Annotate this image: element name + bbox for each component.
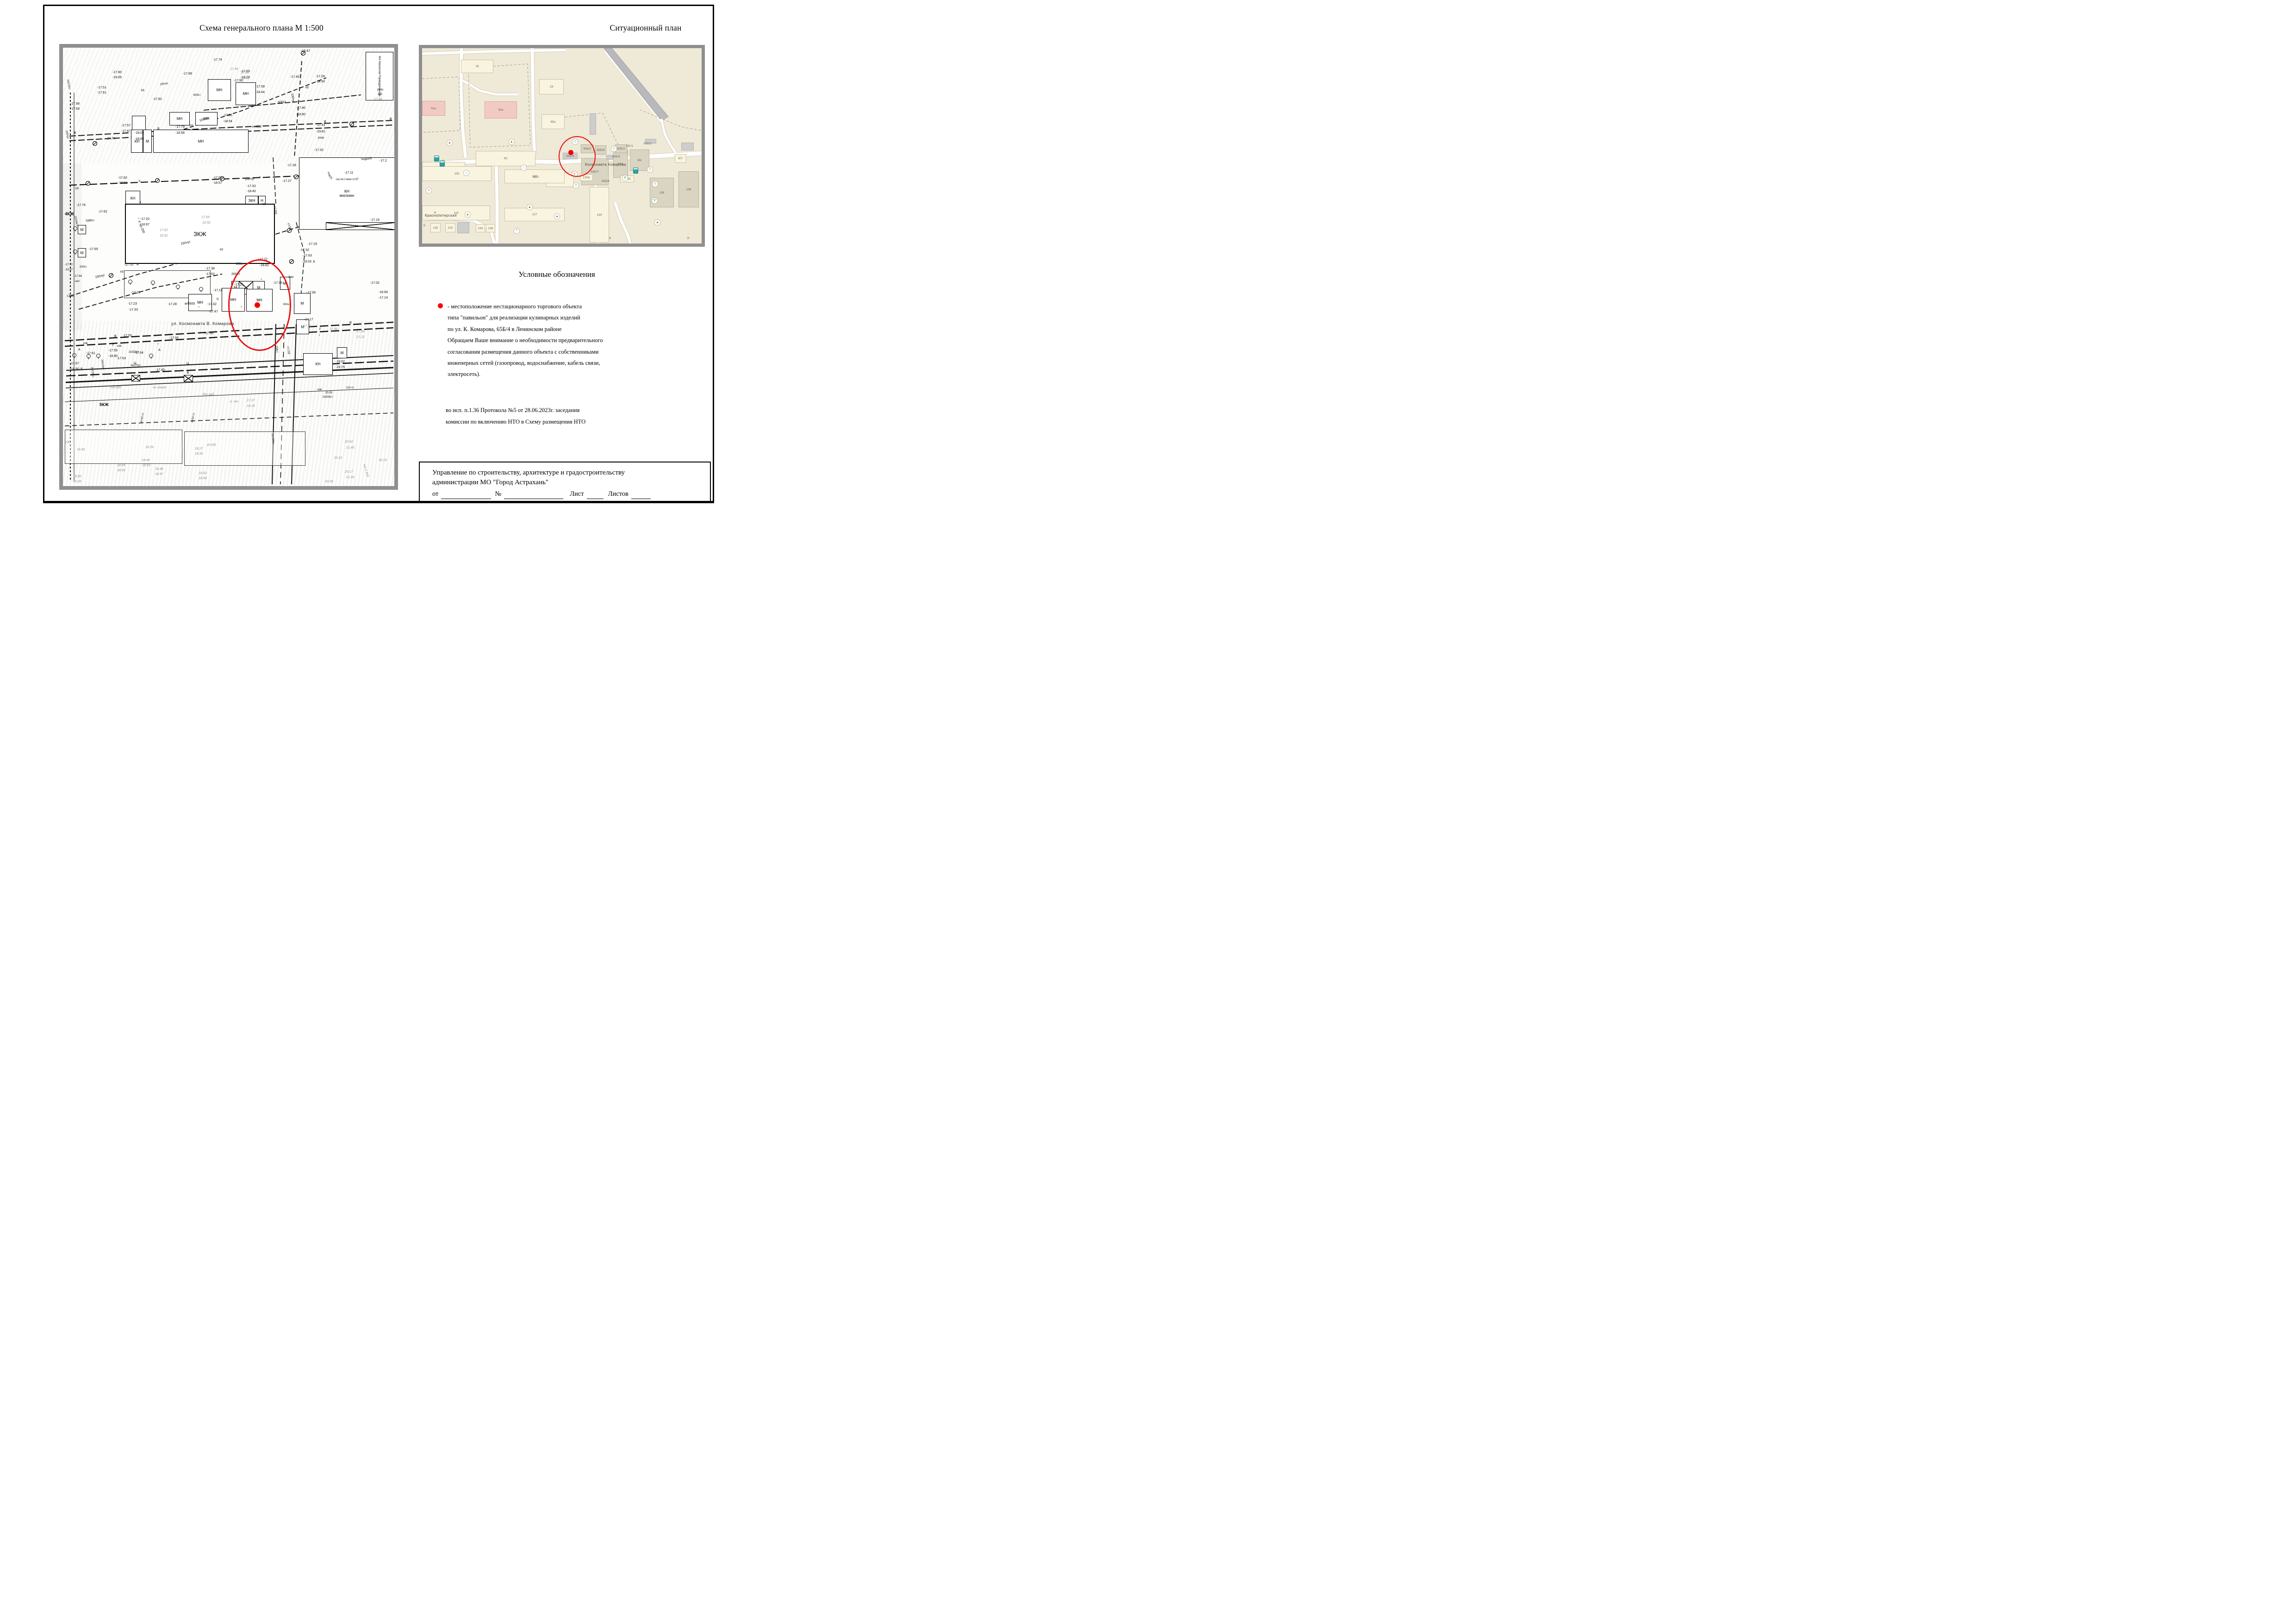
sheet-label: Лист <box>570 490 584 498</box>
pencil-label: 17.50 <box>330 328 338 331</box>
elevation-label: ков. <box>117 344 122 348</box>
elevation-label: 4КЖ <box>65 212 74 216</box>
plan-building: КН магазин <box>299 157 394 230</box>
bottle-icon: ! <box>652 181 658 187</box>
legend-text-line: Обращаем Ваше внимание о необходимости п… <box>448 335 701 346</box>
elevation-label: -17.67 <box>70 362 79 366</box>
elevation-label: -17.62 <box>98 210 107 214</box>
bottle-icon: ! <box>647 167 653 173</box>
plan-building: М <box>78 225 86 234</box>
elevation-label: 159ст <box>274 345 279 353</box>
map-building: 136 <box>486 224 495 232</box>
elevation-label: Кб <box>220 248 223 252</box>
elevation-label: -17.69 <box>70 107 80 111</box>
elevation-label: -17.32 <box>314 149 324 152</box>
elevation-label: -19.81 <box>316 130 325 134</box>
pencil-label: 18.27 <box>195 447 203 451</box>
playground-icon: ▲ <box>465 212 471 218</box>
elevation-label: В <box>114 335 117 338</box>
pencil-label: 18.85 <box>73 475 81 479</box>
parking-label: Р <box>609 237 611 240</box>
pencil-label: 18.48 <box>155 468 163 471</box>
tree-icon <box>73 226 77 231</box>
pencil-label: 18.66 <box>199 477 207 481</box>
elevation-label: -17.82 <box>118 176 127 180</box>
elevation-label: В <box>74 131 76 135</box>
map-building: 138 <box>678 171 699 207</box>
elevation-label: -18.90 <box>70 368 79 371</box>
elevation-label: -17.58 <box>70 102 80 106</box>
elevation-label: Зам <box>288 275 293 279</box>
bus-icon <box>434 156 439 162</box>
playground-icon: ▲ <box>527 204 533 210</box>
pencil-label: 18.44 <box>142 459 150 462</box>
elevation-label: 2d159ст <box>129 350 139 354</box>
elevation-label: -17.52 <box>213 176 222 180</box>
pencil-label: р. шк. <box>230 400 239 404</box>
plan-building: МН <box>208 79 231 101</box>
pencil-label: 17.62 <box>160 229 168 232</box>
tree-icon <box>151 281 155 285</box>
plan-building: ЗКЖ <box>125 204 275 264</box>
pencil-label: 20.42 <box>345 440 353 444</box>
playground-icon: ▲ <box>447 140 453 146</box>
blank-line <box>587 493 604 499</box>
elevation-label: Кб <box>120 270 124 274</box>
map-building: 16 <box>461 60 493 73</box>
elevation-label: 2d273ст <box>131 364 141 368</box>
protocol-line: комиссии по включению НТО в Схему размещ… <box>446 416 696 428</box>
map-building: 61а <box>422 101 445 116</box>
elevation-label: -19.02 <box>336 360 345 364</box>
elevation-label: ст.400 <box>252 125 261 129</box>
pencil-label: 17.48 <box>374 98 382 101</box>
elevation-label: -17.2 <box>380 159 387 163</box>
legend-item: - местоположение нестационарного торгово… <box>435 301 701 380</box>
elevation-label: -17.45 <box>156 369 165 372</box>
elevation-label: В <box>157 127 160 131</box>
elevation-label: -18.57 <box>213 181 222 185</box>
tree-icon <box>128 280 132 284</box>
map-building: 132 <box>445 223 455 232</box>
elevation-label: К <box>139 180 141 183</box>
pencil-label: 2d=265 <box>110 386 121 390</box>
bus-icon <box>440 161 445 167</box>
map-building: 65Б/6 <box>595 145 606 155</box>
elevation-label: ков <box>317 388 322 392</box>
nto-location-dot <box>255 302 260 308</box>
elevation-label: -17.89 <box>183 72 192 76</box>
elevation-label: -17.38 <box>205 267 215 271</box>
pencil-label: 18.53 <box>142 464 150 468</box>
legend-text-line: по ул. К. Комарова, 65Б/4 в Ленинском ра… <box>448 324 701 335</box>
elevation-label: Б <box>187 371 189 375</box>
elevation-label: -17.02 <box>370 281 380 285</box>
map-building: 67г <box>675 154 686 163</box>
pencil-label: по земле <box>153 386 166 390</box>
elevation-label: Б <box>81 368 83 371</box>
survey-cross-mark: × <box>318 334 320 337</box>
map-building-label: 65Б/8 <box>602 180 610 183</box>
playground-icon: ▲ <box>554 213 560 219</box>
elevation-label: -17.52 <box>247 185 256 188</box>
legend-text: - местоположение нестационарного торгово… <box>448 301 701 380</box>
elevation-label: -17.32 <box>207 303 217 306</box>
tree-icon <box>87 354 91 358</box>
pencil-label: 18.25 <box>247 405 255 408</box>
elevation-label: Кб <box>75 187 79 191</box>
pencil-label: 18.45 <box>117 464 125 468</box>
number-label: № <box>495 490 501 498</box>
elevation-label: -17.41 <box>316 124 325 127</box>
elevation-label: -17.11 <box>213 289 222 293</box>
sitplan-canvas: 161861а63а65а61636565Б/765/165г67г65а/26… <box>422 48 702 244</box>
nto-location-dot <box>568 150 573 155</box>
elevation-label: -17.59 <box>255 85 265 89</box>
elevation-label: В <box>349 321 352 325</box>
pencil-label: 17.45 <box>230 68 238 71</box>
elevation-label: -17.28 <box>168 303 177 306</box>
street-name-label: ул. Космонавта В. Комарова <box>171 322 234 326</box>
elevation-label: ков. <box>83 342 88 345</box>
elevation-label: К <box>259 176 261 180</box>
elevation-label: -17.47 <box>209 310 218 314</box>
pencil-label: 17.69 <box>201 216 210 219</box>
plan-building: М <box>78 248 86 257</box>
elevation-label: зал. <box>75 280 80 283</box>
pencil-label: 19.05 <box>73 480 81 484</box>
elevation-label: Г <box>319 328 321 331</box>
map-building: 130 <box>430 223 441 232</box>
plan-building: МН <box>169 112 190 125</box>
plan-building: КН <box>303 353 333 375</box>
elevation-label: -17.80 <box>296 106 305 110</box>
elevation-label: -17.14 <box>379 296 388 300</box>
elevation-label: -18.40 <box>247 190 256 194</box>
map-building <box>457 222 469 233</box>
elevation-label: -17.32 <box>300 249 309 252</box>
elevation-label: -17.92 <box>153 98 162 101</box>
elevation-label: ц <box>217 297 218 301</box>
tree-icon <box>199 287 203 291</box>
pencil-label: 18.50 <box>195 452 203 456</box>
elevation-label: -18.85 <box>135 137 144 141</box>
nto-location-circle <box>559 136 596 177</box>
cross-icon: + <box>426 187 432 194</box>
elevation-label: 600ст <box>278 100 286 105</box>
elevation-label: -19.37 <box>65 268 73 272</box>
pencil-label: 17.22 <box>356 336 365 339</box>
elevation-label: 200ст <box>80 265 87 269</box>
tree-icon <box>96 354 100 358</box>
pencil-label: 13.44 <box>241 77 249 81</box>
elevation-label: -18.47 <box>301 50 310 53</box>
elevation-label: -17.19 <box>308 243 317 246</box>
playground-icon: ▲ <box>509 139 515 145</box>
elevation-label: -17.55 <box>204 332 213 336</box>
elevation-label: А <box>78 348 81 352</box>
elevation-label: -17.17 <box>304 318 313 322</box>
elevation-label: Кб <box>305 86 309 90</box>
title-block: Управление по строительству, архитектуре… <box>419 462 711 502</box>
pencil-label: 18.52 <box>199 472 207 475</box>
pencil-label: 100 <box>65 441 70 444</box>
map-building: 134 <box>590 187 609 243</box>
genplan-canvas: МНМНМНКНММНМНМНКН Насосная Горводоканала… <box>63 48 394 486</box>
elevation-label: А <box>137 263 139 267</box>
pencil-label: 18.92 <box>160 234 168 238</box>
elevation-label: -17.74 <box>213 58 222 62</box>
map-building: 18 <box>539 79 564 94</box>
elevation-label: -18.30 <box>316 80 325 84</box>
survey-cross-mark: × <box>138 218 140 220</box>
elevation-label: -19.05 <box>112 76 122 80</box>
elevation-label: газ по стене ст.57 <box>336 178 359 181</box>
playground-icon: ▲ <box>654 219 660 225</box>
pencil-label: 18.57 <box>155 473 163 476</box>
elevation-label: -17.61 <box>97 91 106 95</box>
bell-icon: ♪ <box>463 170 469 176</box>
legend-text-line: инженерных сетей (газопровод, водоснабже… <box>448 357 701 369</box>
elevation-label: -17.65 <box>89 248 98 251</box>
elevation-label: -16.94 <box>379 291 388 294</box>
map-building <box>681 143 694 150</box>
elevation-label: -19.75 <box>336 366 345 369</box>
elevation-label: -17.53 <box>117 357 126 361</box>
elevation-label: -17.67 <box>121 130 131 133</box>
elevation-label: Кб <box>190 124 193 128</box>
plan-building: МН <box>153 130 249 153</box>
elevation-label: ст.200 <box>273 206 277 214</box>
elevation-label: -17.62 <box>205 273 215 276</box>
sitplan-frame: 161861а63а65а61636565Б/765/165г67г65а/26… <box>419 45 705 247</box>
elevation-label: А <box>158 349 161 352</box>
tree-icon <box>176 285 180 289</box>
legend-text-line: типа "павильон" для реализации кулинарны… <box>448 312 701 323</box>
map-building: 63 <box>476 151 535 166</box>
plan-building: МН <box>236 82 256 105</box>
elevation-label: -18.03 <box>135 131 144 135</box>
elevation-label: -17.28 <box>287 164 296 168</box>
plan-building: М <box>143 130 152 153</box>
elevation-label: -17.70 <box>124 263 133 267</box>
survey-cross-mark: × <box>157 343 159 346</box>
elevation-label: -17.51 <box>97 86 106 90</box>
elevation-label: 250чуг <box>245 177 255 181</box>
blank-line <box>441 493 491 499</box>
pencil-label: 17.56 <box>356 330 365 334</box>
legend-title: Условные обозначения <box>428 270 685 279</box>
person-icon: Y <box>652 198 658 204</box>
parking-label: Р <box>687 237 690 240</box>
map-building: 65а <box>541 114 565 129</box>
elevation-label: заб. <box>378 93 383 96</box>
elevation-label: К6 <box>141 89 144 93</box>
blank-line <box>631 493 651 499</box>
elevation-label: -17.19 <box>370 219 380 222</box>
elevation-label: -17.76 <box>76 204 86 207</box>
genplan-frame: МНМНМНКНММНМНМНКН Насосная Горводоканала… <box>59 44 398 490</box>
legend-text-line: согласования размещения данного объекта … <box>448 346 701 357</box>
protocol-line: во исп. п.1.36 Протокола №5 от 28.06.202… <box>446 405 696 416</box>
map-building-label: 65Б/3 <box>644 142 652 145</box>
pencil-label: без каб. <box>203 393 215 397</box>
plan-building: М <box>294 293 311 314</box>
document-page: Схема генерального плана М 1:500 Ситуаци… <box>0 0 717 507</box>
elevation-label: 2d155ст <box>323 395 333 399</box>
elevation-label: 2д68ст <box>86 219 94 223</box>
pencil-label: 17.59 <box>241 71 249 75</box>
elevation-label: 110 ст. <box>346 386 355 390</box>
red-dot-icon <box>438 303 443 308</box>
blank-line <box>504 493 563 499</box>
elevation-label: -17.08 <box>306 291 316 295</box>
survey-cross-mark: × <box>198 306 200 309</box>
elevation-label: -17.79 <box>175 125 185 129</box>
elevation-label: ст.159 <box>286 346 290 354</box>
elevation-label: -17.11 <box>344 171 353 175</box>
elevation-label: -17.27 <box>282 180 292 183</box>
elevation-label: -18.80 <box>108 355 118 358</box>
bus-icon <box>633 168 638 174</box>
elevation-label: -18.03 <box>302 260 311 264</box>
elevation-label: -18.80 <box>296 113 305 117</box>
title-block-org-line2: администрации МО "Город Астрахань" <box>432 478 705 487</box>
sitplan-title: Ситуационный план <box>588 23 703 33</box>
elevation-label: -17.86 <box>223 114 232 118</box>
from-label: от <box>432 490 438 498</box>
pencil-label: 20.15 <box>379 459 387 462</box>
elevation-label: -17.23 <box>128 302 137 306</box>
elevation-label: -17.64 <box>74 275 82 278</box>
title-block-fields: от№ЛистЛистов <box>432 489 705 499</box>
elevation-label: 600ст <box>193 94 201 97</box>
elevation-label: -17.55 <box>123 334 132 338</box>
crossed-box <box>326 222 394 230</box>
pencil-label: 20.30 <box>325 480 333 484</box>
pencil-label: 18.39 <box>145 446 154 450</box>
elevation-label: разр. <box>318 136 324 140</box>
elevation-label: -18.44 <box>255 91 265 94</box>
wrench-icon: * <box>514 228 520 234</box>
elevation-label: ж/б500 <box>185 302 195 306</box>
map-building-label: 65Б/5 <box>612 155 620 158</box>
elevation-label: -18.54 <box>223 120 232 124</box>
elevation-label: В <box>324 120 326 124</box>
map-building-label: 65г/1 <box>626 144 633 148</box>
elevation-label: -17.20 <box>140 218 149 221</box>
elevation-label: -17.72 <box>65 263 73 267</box>
plan-building <box>65 430 182 464</box>
elevation-label: -17.28 <box>316 75 325 79</box>
title-block-org-line1: Управление по строительству, архитектуре… <box>432 468 705 478</box>
pencil-label: 18.40 <box>77 448 85 452</box>
elevation-label: А <box>313 260 315 264</box>
elevation-label: -17.25 <box>131 291 140 295</box>
elevation-label: -17.57 <box>121 124 131 128</box>
crossed-box <box>184 375 193 382</box>
elevation-label: -17.80 <box>112 71 122 75</box>
elevation-label: -17.30 <box>66 294 74 298</box>
map-building-label: 63/1 <box>533 175 539 179</box>
elevation-label: -17.59 <box>108 349 118 353</box>
map-building <box>590 113 596 135</box>
tree-icon <box>73 250 77 254</box>
tree-icon <box>72 353 76 357</box>
bell-icon: ♪ <box>521 165 527 171</box>
pencil-label: 20.17 <box>345 470 353 474</box>
elevation-label: -17.55 <box>169 337 179 340</box>
legend-text-line: электросеть). <box>448 369 701 380</box>
legend-text-line: - местоположение нестационарного торгово… <box>448 301 701 312</box>
elevation-label: В <box>390 118 392 121</box>
person-icon: Y <box>622 175 628 181</box>
map-building: 130 <box>422 166 492 181</box>
pencil-label: 17.61 <box>303 325 311 328</box>
map-building: 115 <box>422 206 490 220</box>
bottle-icon: ! <box>611 146 617 152</box>
map-building-label: 8 <box>423 224 425 227</box>
elevation-label: 20.05 <box>325 391 332 395</box>
pencil-label: 21.45 <box>346 446 355 450</box>
crossed-box <box>131 375 140 381</box>
pencil-label: 18.55 <box>117 469 125 473</box>
pencil-label: 17.27 <box>247 399 255 403</box>
elevation-label: -17.45 <box>290 75 299 79</box>
elevation-label: -17.33 <box>129 308 138 312</box>
tree-icon <box>149 354 153 358</box>
pencil-label: 20.31 <box>334 456 342 460</box>
bottle-icon: ! <box>573 182 579 188</box>
elevation-label: -17.72 <box>106 137 115 141</box>
elevation-label: Г <box>112 344 114 348</box>
elevation-label: 5КЖ <box>100 403 109 407</box>
elevation-label: Ц <box>187 362 189 366</box>
map-street-label: Краснопитерская <box>425 213 457 218</box>
pencil-label: 18.50 <box>202 221 211 225</box>
elevation-label: -18.92 <box>118 181 127 185</box>
sheets-label: Листов <box>608 490 628 498</box>
protocol-note: во исп. п.1.36 Протокола №5 от 28.06.202… <box>446 405 696 428</box>
map-building: 134 <box>476 224 485 232</box>
map-building: 63а <box>485 101 517 119</box>
elevation-label: -17.63 <box>303 254 312 258</box>
elevation-label: 65 <box>262 203 266 206</box>
genplan-title: Схема генерального плана М 1:500 <box>162 23 361 33</box>
plan-building: М <box>337 347 347 358</box>
pencil-label: d=100 <box>207 443 216 447</box>
elevation-label: разр. <box>377 88 384 92</box>
elevation-label: -18.58 <box>175 131 185 135</box>
pencil-label: 21.55 <box>346 476 355 480</box>
parking-label: Р <box>434 212 436 215</box>
